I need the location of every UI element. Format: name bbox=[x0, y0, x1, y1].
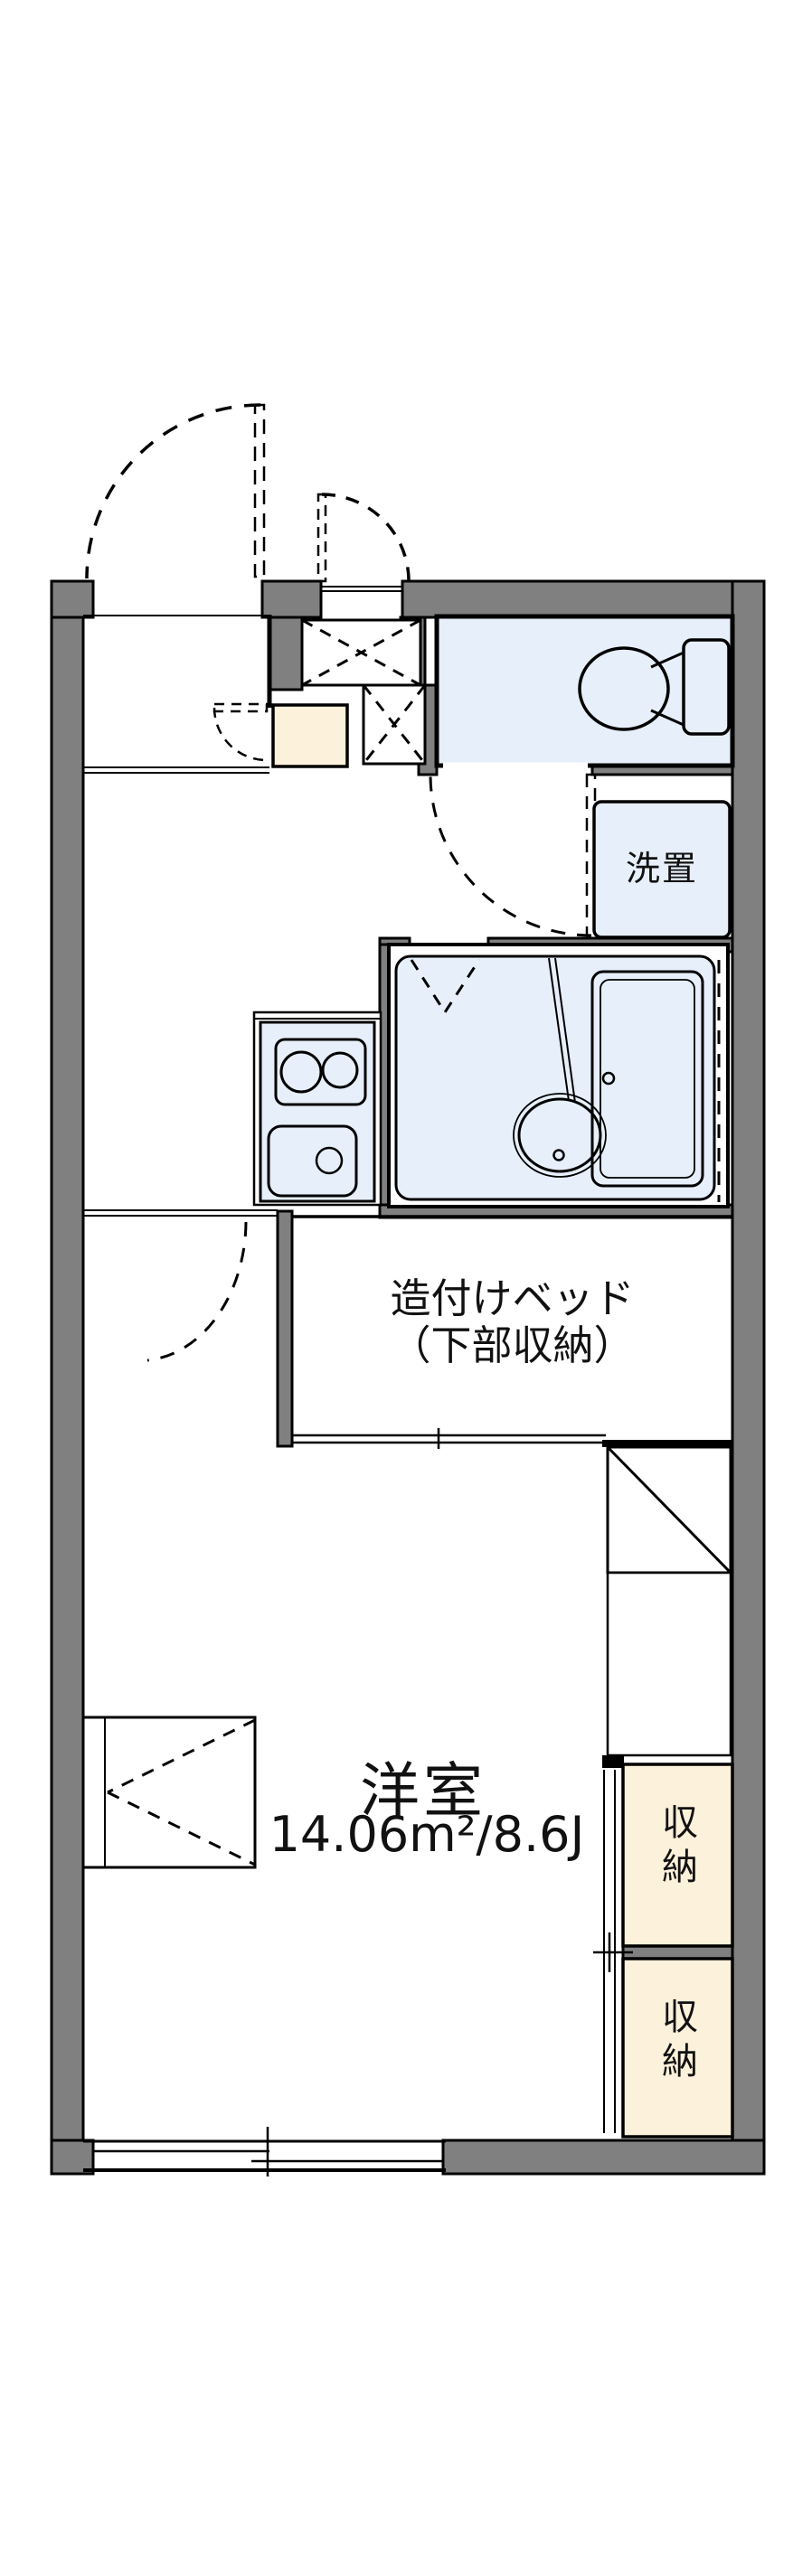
shoe-cabinet bbox=[273, 705, 347, 766]
closet-upper-label: 収納 bbox=[659, 1801, 701, 1890]
wall-left bbox=[52, 581, 83, 2174]
toilet-door-swing-icon bbox=[430, 775, 595, 935]
bed-storage-sublabel: （下部収納） bbox=[292, 1312, 732, 1371]
bathroom bbox=[389, 945, 728, 1207]
wall-top-mid bbox=[262, 581, 321, 617]
wall-top-left bbox=[52, 581, 93, 617]
shelf-space bbox=[608, 1573, 731, 1755]
wall-closet-divider bbox=[623, 1946, 732, 1959]
toilet-room bbox=[437, 616, 732, 766]
entrance-step bbox=[83, 767, 269, 773]
hall-door-swing-icon bbox=[214, 704, 267, 760]
washer-space-label: 洗置 bbox=[594, 841, 730, 890]
entrance-door-swing-icon bbox=[87, 405, 264, 578]
room-door-swing-icon bbox=[147, 1222, 246, 1360]
closet-lower-label: 収納 bbox=[659, 1996, 701, 2084]
room-size-label: 14.06m²/8.6J bbox=[223, 1806, 630, 1863]
wall-top-right bbox=[402, 581, 764, 617]
wall-bed-left bbox=[278, 1211, 292, 1446]
window-south bbox=[83, 2127, 446, 2176]
closet-corner-stub bbox=[602, 1755, 624, 1768]
room-entry bbox=[83, 1210, 278, 1360]
wall-genkan-left bbox=[269, 617, 302, 690]
wall-right bbox=[732, 581, 764, 2174]
floor-plan: 洗置 造付けベッド （下部収納） 洋室 14.06m²/8.6J 収納 収納 bbox=[0, 0, 812, 2576]
wall-bottom-right bbox=[443, 2140, 764, 2174]
refrigerator-space-icon bbox=[608, 1447, 731, 1573]
entrance-hall bbox=[83, 615, 269, 773]
service-door-swing-icon bbox=[318, 494, 409, 591]
kitchen-unit bbox=[254, 1012, 381, 1205]
